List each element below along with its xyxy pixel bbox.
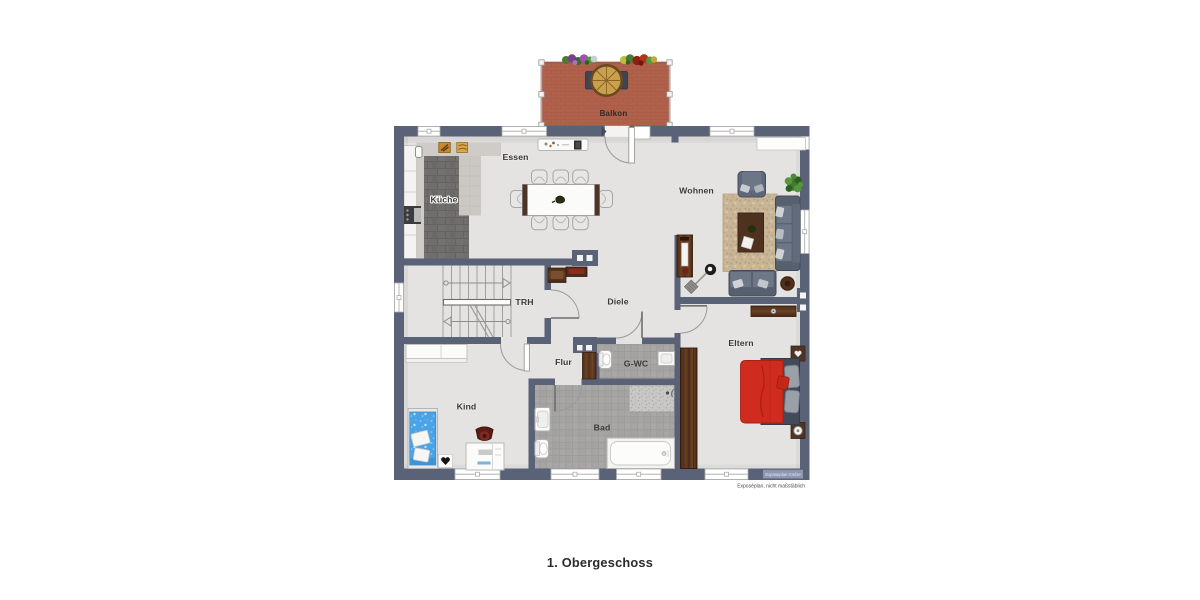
svg-text:Wohnen: Wohnen bbox=[679, 186, 714, 196]
svg-text:G-WC: G-WC bbox=[624, 359, 649, 369]
svg-text:Exposeplan GmbH: Exposeplan GmbH bbox=[765, 472, 800, 477]
svg-text:Küche: Küche bbox=[430, 195, 457, 205]
svg-text:Eltern: Eltern bbox=[728, 338, 753, 348]
svg-text:Kind: Kind bbox=[457, 402, 477, 412]
svg-text:Balkon: Balkon bbox=[600, 109, 628, 118]
svg-text:Bad: Bad bbox=[594, 423, 611, 433]
svg-text:Exposéplan, nicht maßstäblich: Exposéplan, nicht maßstäblich bbox=[737, 484, 805, 490]
svg-text:TRH: TRH bbox=[515, 297, 533, 307]
svg-text:1. Obergeschoss: 1. Obergeschoss bbox=[547, 555, 653, 570]
svg-text:Diele: Diele bbox=[607, 297, 628, 307]
svg-text:Essen: Essen bbox=[502, 152, 528, 162]
svg-text:Flur: Flur bbox=[555, 357, 572, 367]
